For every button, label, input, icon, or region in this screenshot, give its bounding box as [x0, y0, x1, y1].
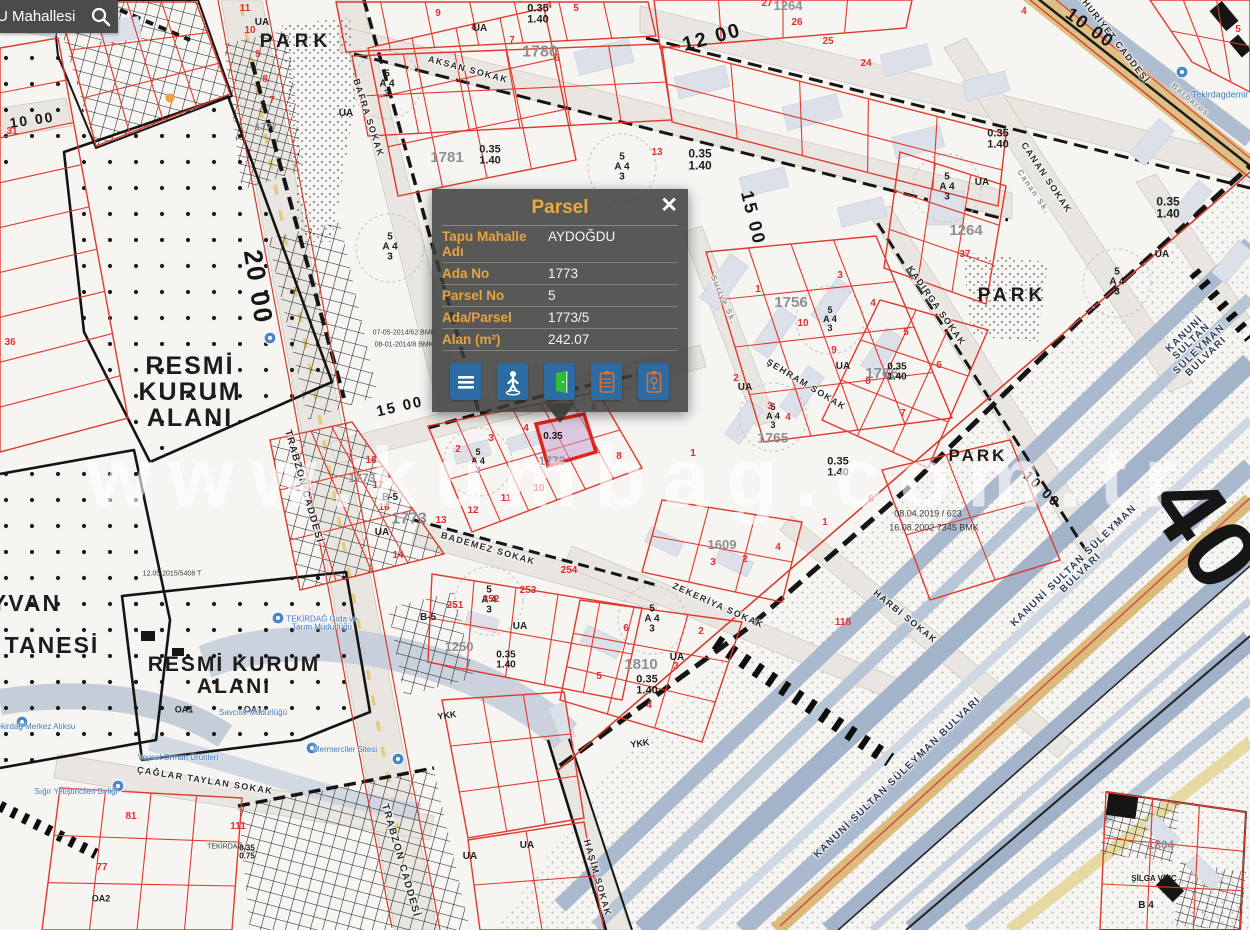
popup-field-value: 5: [548, 288, 678, 303]
popup-field-value: AYDOĞDU: [548, 229, 678, 244]
popup-field-row: Parsel No5: [442, 285, 678, 307]
popup-field-row: Tapu Mahalle AdıAYDOĞDU: [442, 226, 678, 263]
popup-field-label: Parsel No: [442, 288, 548, 303]
close-button[interactable]: ✕: [658, 193, 680, 218]
popup-title: Parsel: [442, 195, 678, 226]
popup-field-label: Tapu Mahalle Adı: [442, 229, 548, 259]
popup-field-value: 1773: [548, 266, 678, 281]
parcel-info-popup: Parsel ✕ Tapu Mahalle AdıAYDOĞDUAda No17…: [432, 189, 688, 412]
popup-field-row: Ada/Parsel1773/5: [442, 307, 678, 329]
close-icon: ✕: [660, 194, 678, 217]
layers-menu-button[interactable]: [450, 363, 481, 400]
parcel-report-button[interactable]: [591, 363, 622, 400]
door-icon: [548, 368, 572, 396]
pegman-icon: [501, 368, 525, 396]
popup-field-label: Ada/Parsel: [442, 310, 548, 325]
popup-button-bar: [450, 363, 678, 400]
popup-field-value: 242.07: [548, 332, 678, 347]
map-application: { "search": { "value": "U Mahallesi", "i…: [0, 0, 1250, 930]
map-canvas[interactable]: [0, 0, 1250, 930]
search-input[interactable]: U Mahallesi: [0, 8, 88, 25]
popup-field-row: Ada No1773: [442, 263, 678, 285]
search-bar: U Mahallesi: [0, 0, 118, 33]
clipboard-list-icon: [595, 368, 619, 396]
go-to-door-button[interactable]: [544, 363, 575, 400]
popup-field-label: Ada No: [442, 266, 548, 281]
popup-field-label: Alan (m²): [442, 332, 548, 347]
deed-info-button[interactable]: [638, 363, 669, 400]
hamburger-icon: [454, 368, 478, 396]
clipboard-seal-icon: [642, 368, 666, 396]
popup-fields: Tapu Mahalle AdıAYDOĞDUAda No1773Parsel …: [442, 226, 678, 351]
search-icon: [90, 6, 112, 28]
popup-field-row: Alan (m²)242.07: [442, 329, 678, 351]
street-view-button[interactable]: [497, 363, 528, 400]
popup-field-value: 1773/5: [548, 310, 678, 325]
search-button[interactable]: [88, 6, 118, 28]
orange-marker-icon: [166, 94, 175, 103]
